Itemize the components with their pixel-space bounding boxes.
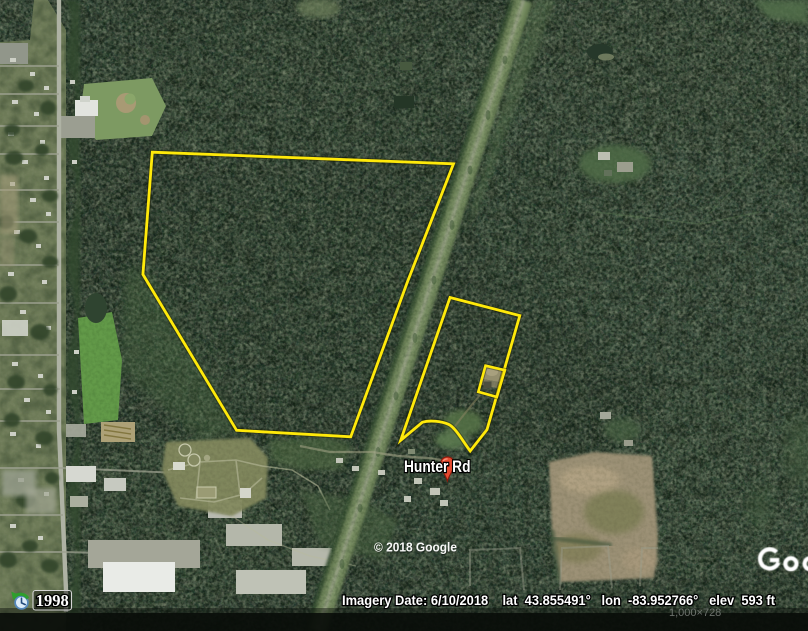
svg-text:Imagery Date: 6/10/2018 lat: Imagery Date: 6/10/2018 lat 43.855491° l… [342,593,776,608]
svg-text:1,000×728: 1,000×728 [669,607,721,619]
svg-text:1998: 1998 [36,591,69,610]
svg-text:Hunter Rd: Hunter Rd [404,458,471,476]
svg-text:© 2018 Google: © 2018 Google [374,540,457,555]
